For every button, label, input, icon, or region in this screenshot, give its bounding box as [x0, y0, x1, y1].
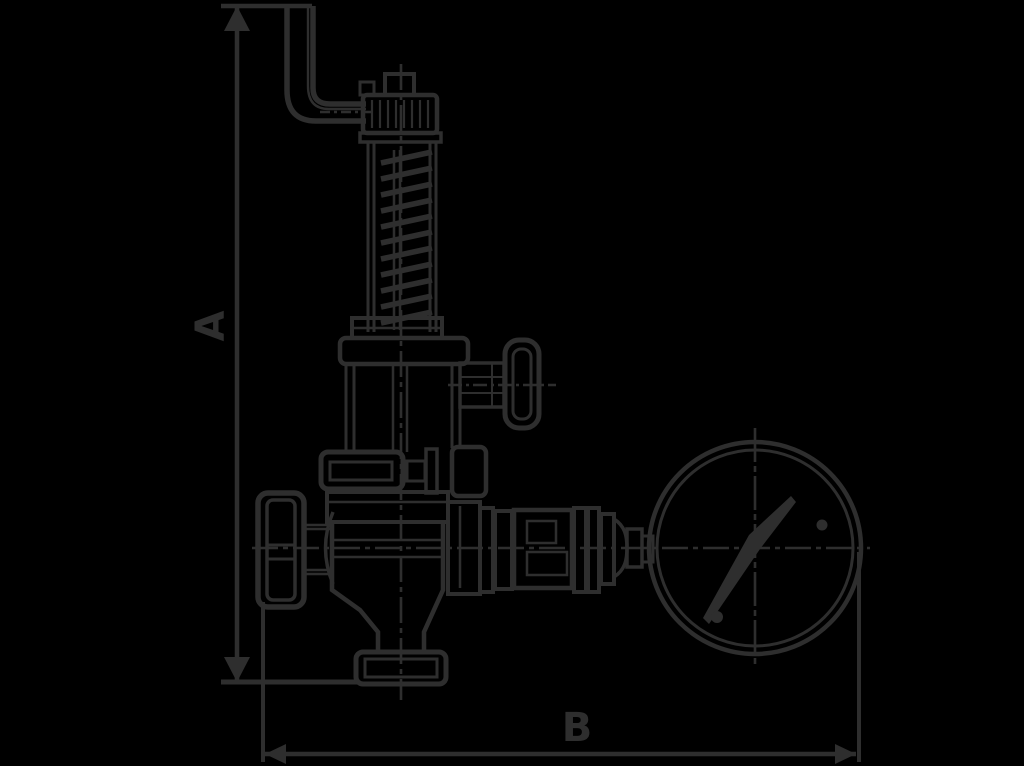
run-plate-1: [480, 508, 493, 592]
spring-bonnet: [340, 142, 468, 452]
dim-a-arrow-up: [224, 6, 250, 31]
union-nipple: [385, 74, 414, 95]
dimension-b: B: [263, 552, 859, 764]
handwheel: [258, 493, 304, 607]
bonnet-left-rail: [368, 142, 374, 332]
run-plate-4: [588, 508, 599, 592]
dim-b-arrow-left: [265, 744, 286, 764]
handwheel-inner: [267, 500, 295, 600]
run-union-window-1: [527, 521, 556, 543]
vent-pipe-inner-wall: [313, 6, 366, 104]
flange-mid-rect: [407, 461, 425, 481]
flange-window: [330, 462, 392, 480]
spring-coils: [381, 152, 432, 323]
dim-a-label: A: [188, 310, 234, 341]
run-union-window-2: [527, 552, 567, 575]
vent-pipe-wall-line: [308, 6, 366, 109]
vent-pipe: [287, 6, 366, 121]
dim-a-arrow-down: [224, 657, 250, 682]
run-plate-2: [495, 511, 512, 589]
technical-drawing-canvas: A B: [0, 0, 1024, 766]
bonnet-top-plate: [340, 338, 468, 364]
bonnet-left-wall: [346, 364, 354, 452]
gauge-needle: [703, 496, 796, 624]
gauge-dot-lower-left: [711, 611, 723, 623]
flange-bar: [426, 449, 437, 493]
run-plate-3: [574, 508, 586, 592]
screenshot-root: { "diagram": { "type": "technical-line-d…: [0, 0, 1024, 766]
flange-right-plate: [452, 447, 486, 496]
body-outline: [332, 522, 443, 652]
body-top-band: [327, 492, 448, 522]
handwheel-outline: [258, 493, 304, 607]
dim-b-arrow-right: [835, 744, 856, 764]
dim-b-label: B: [562, 705, 593, 751]
gauge-dot-right: [817, 520, 828, 531]
mid-flange: [321, 447, 486, 496]
valve-body: [302, 492, 480, 684]
pipe-run: [480, 508, 653, 592]
run-plate-5: [601, 514, 614, 584]
